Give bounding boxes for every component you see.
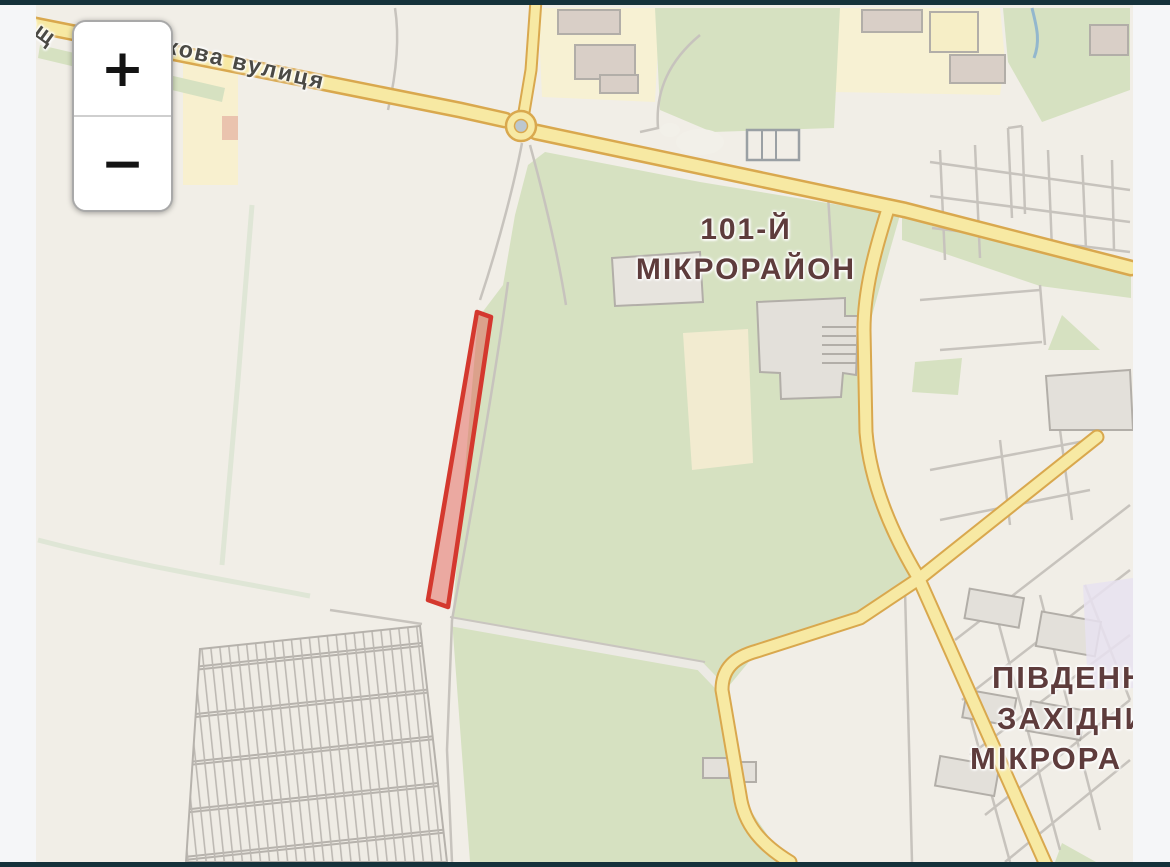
zoom-in-button[interactable]: + xyxy=(74,22,171,117)
lavender-block xyxy=(1083,578,1133,690)
zoom-out-button[interactable]: − xyxy=(74,117,171,210)
zoom-control: + − xyxy=(72,20,173,212)
bottom-app-bar xyxy=(0,862,1170,867)
right-frame-strip xyxy=(1133,0,1170,867)
map-canvas[interactable] xyxy=(0,0,1170,867)
garage-rows-area xyxy=(186,626,447,862)
left-frame-strip xyxy=(0,0,36,867)
school-field xyxy=(683,329,753,470)
map-screen: ощ ставкова вулиця 101-Й МІКРОРАЙОН ПІВД… xyxy=(0,0,1170,867)
plus-icon: + xyxy=(101,39,145,99)
top-app-bar xyxy=(0,0,1170,5)
minus-icon: − xyxy=(101,134,145,194)
